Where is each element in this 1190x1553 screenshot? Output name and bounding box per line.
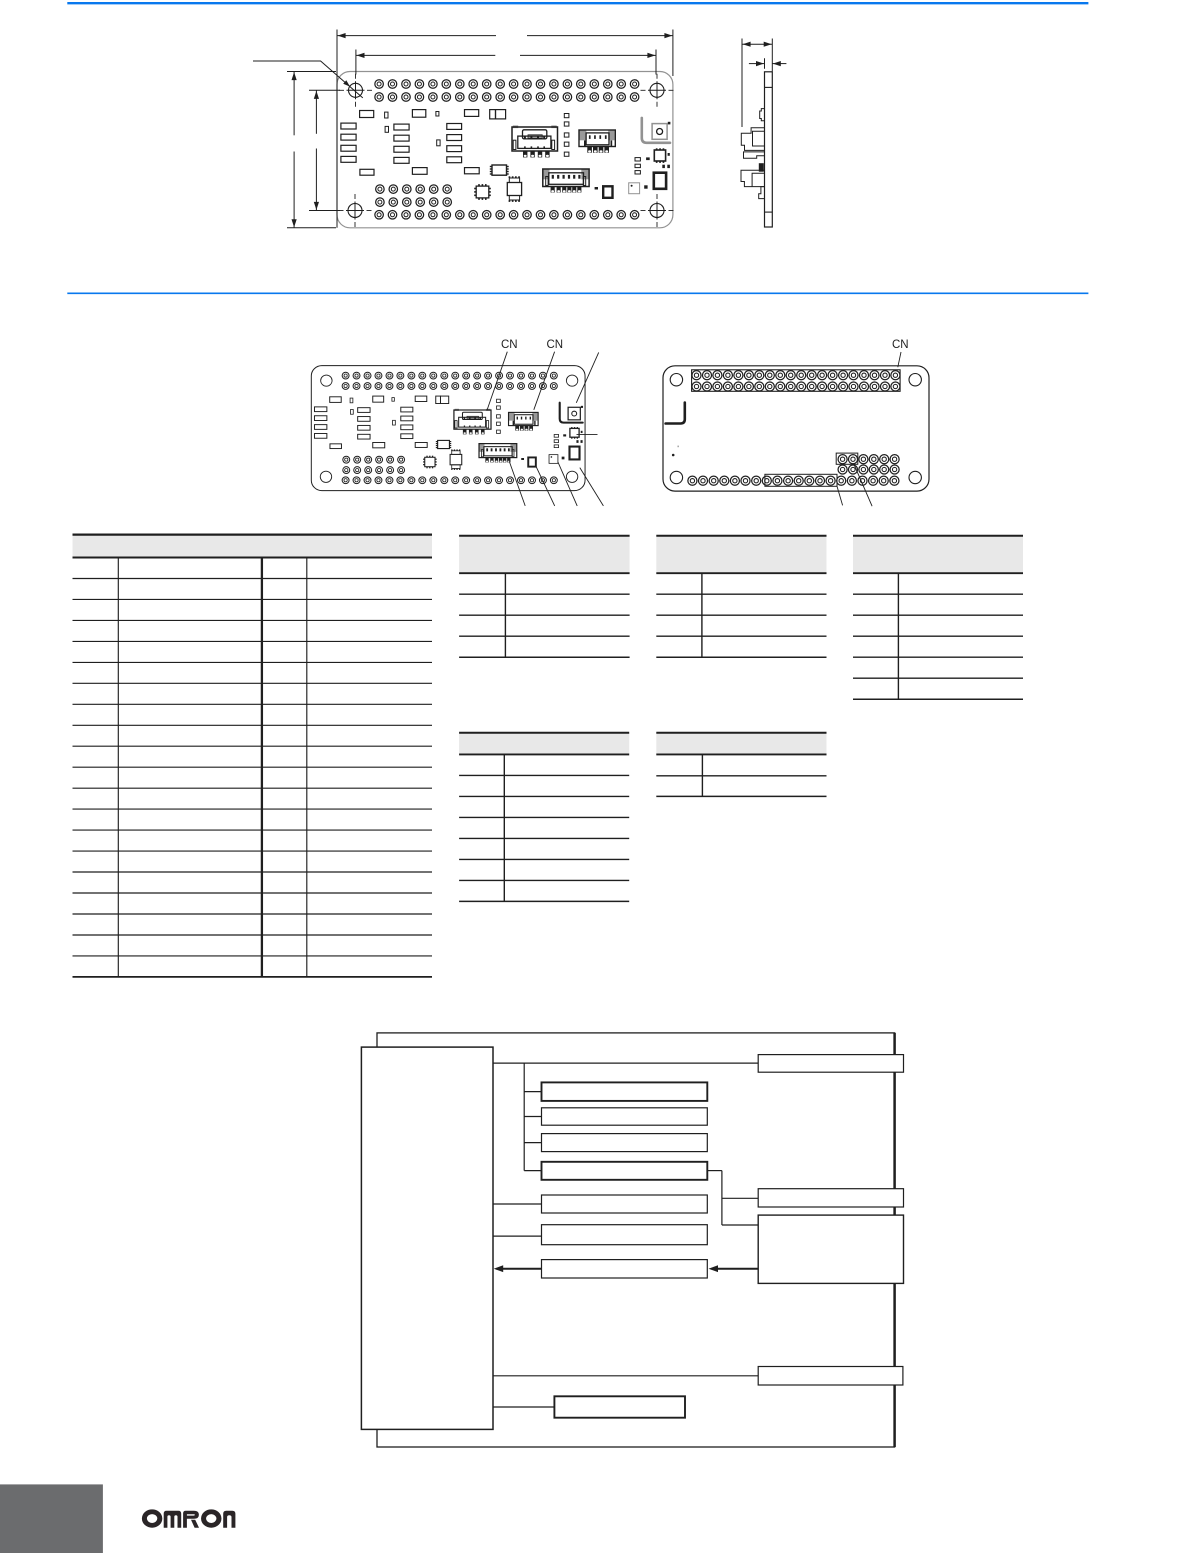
svg-text:CN: CN: [892, 339, 909, 351]
svg-text:CN: CN: [501, 339, 518, 351]
svg-text:CN: CN: [547, 339, 564, 351]
